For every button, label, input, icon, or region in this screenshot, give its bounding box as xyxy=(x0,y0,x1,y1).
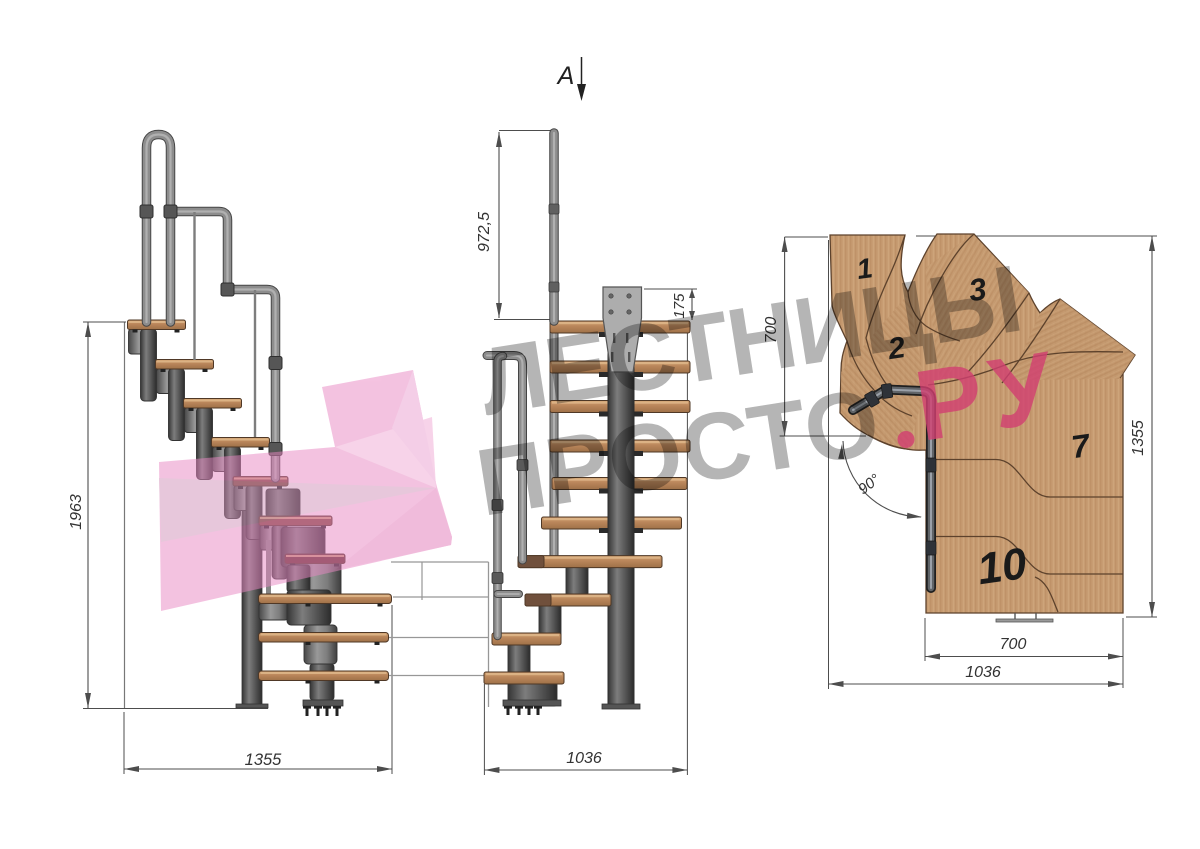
svg-text:700: 700 xyxy=(1000,636,1027,653)
svg-text:10: 10 xyxy=(974,539,1030,594)
svg-text:1036: 1036 xyxy=(965,664,1001,681)
svg-text:A: A xyxy=(556,62,575,90)
svg-text:1355: 1355 xyxy=(245,751,283,769)
svg-text:1963: 1963 xyxy=(68,494,85,530)
svg-text:1036: 1036 xyxy=(566,750,602,767)
svg-text:972,5: 972,5 xyxy=(476,212,493,252)
svg-text:1355: 1355 xyxy=(1130,420,1147,456)
